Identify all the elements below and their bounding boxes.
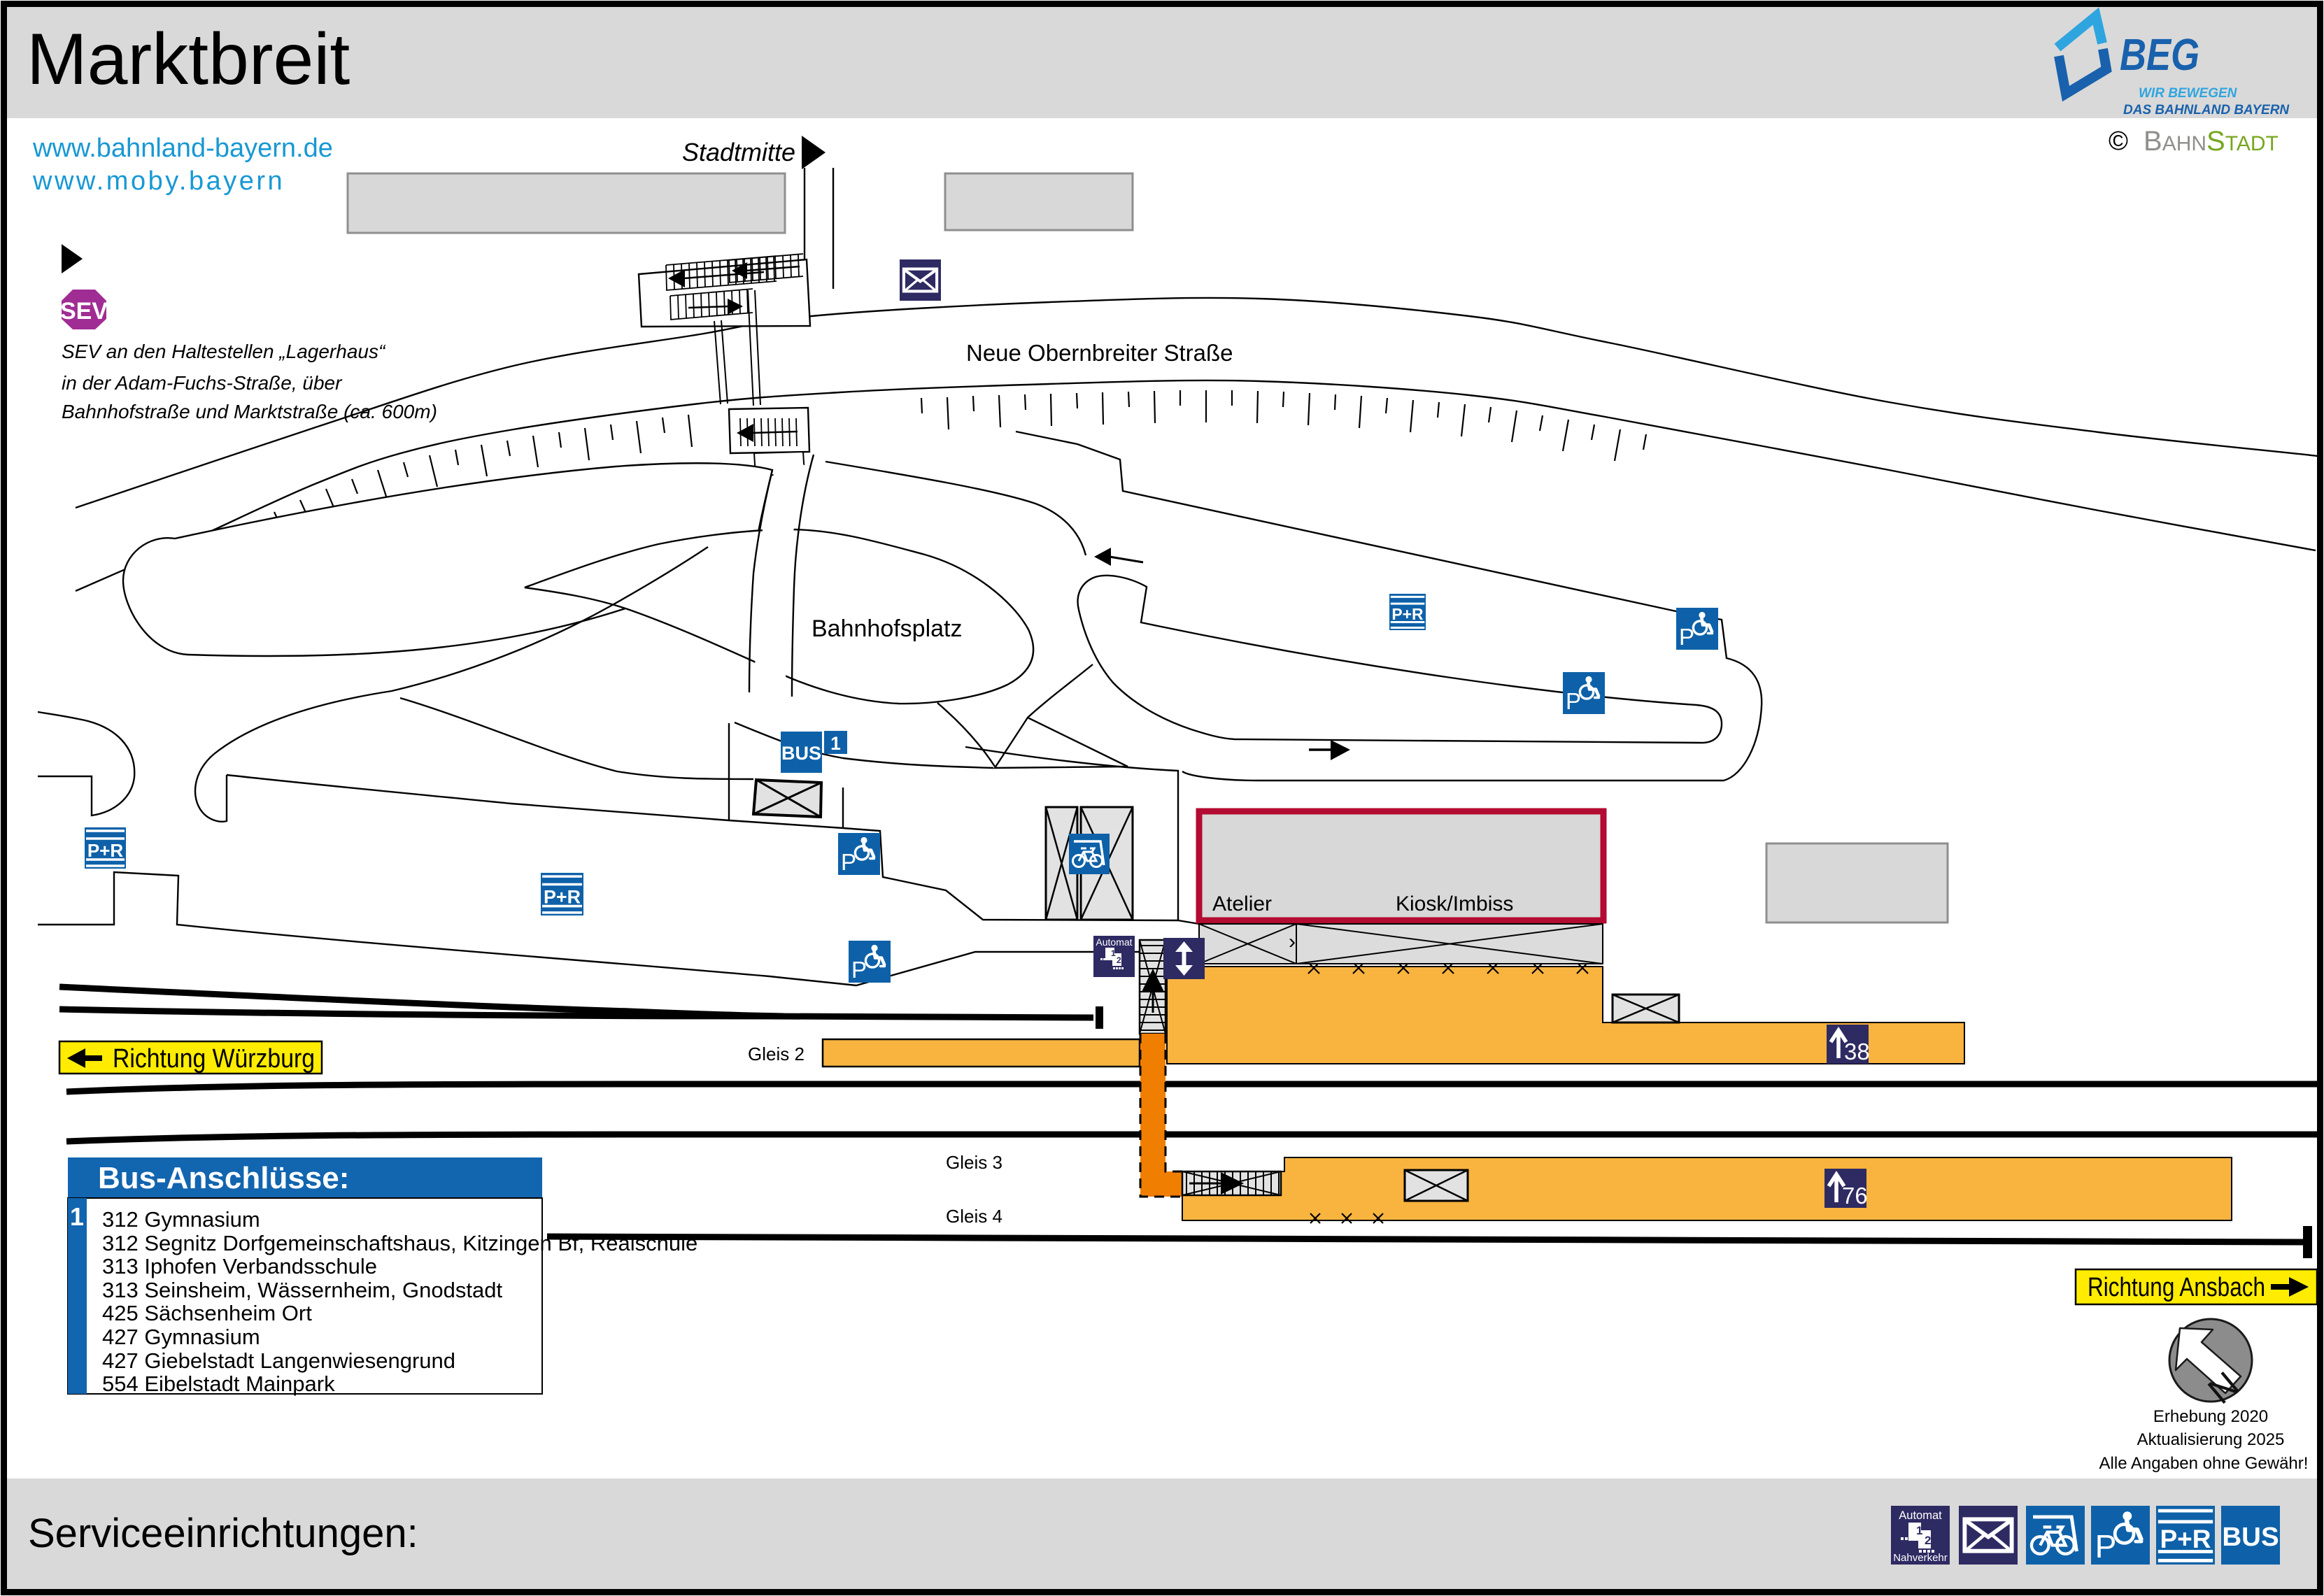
svg-text:Gleis 3: Gleis 3 [946,1152,1002,1173]
svg-text:Aktualisierung 2025: Aktualisierung 2025 [2137,1430,2285,1449]
svg-text:BUS: BUS [2222,1522,2279,1552]
svg-text:www.bahnland-bayern.de: www.bahnland-bayern.de [32,134,333,163]
svg-text:427 Giebelstadt Langenwiesengr: 427 Giebelstadt Langenwiesengrund [102,1348,455,1373]
svg-text:Nahverkehr: Nahverkehr [1893,1552,1948,1564]
svg-text:312 Segnitz Dorfgemeinschaftsh: 312 Segnitz Dorfgemeinschaftshaus, Kitzi… [102,1231,697,1255]
svg-text:BUS: BUS [781,743,821,764]
svg-text:Gleis 2: Gleis 2 [748,1043,805,1064]
svg-text:BEG: BEG [2120,29,2199,80]
svg-text:1: 1 [70,1202,84,1231]
svg-text:1: 1 [1916,1524,1922,1537]
svg-text:SEV an den Haltestellen „Lager: SEV an den Haltestellen „Lagerhaus“ [62,341,386,362]
svg-text:Neue Obernbreiter Straße: Neue Obernbreiter Straße [966,340,1233,366]
svg-text:313 Iphofen Verbandsschule: 313 Iphofen Verbandsschule [102,1254,377,1278]
svg-text:38: 38 [1844,1039,1870,1064]
svg-text:›: › [1289,930,1296,953]
svg-text:in der Adam-Fuchs-Straße, über: in der Adam-Fuchs-Straße, über [62,372,343,394]
svg-text:76: 76 [1842,1183,1868,1209]
svg-text:313 Seinsheim, Wässernheim, Gn: 313 Seinsheim, Wässernheim, Gnodstadt [102,1278,502,1302]
svg-text:P+R: P+R [1391,605,1424,623]
svg-text:Stadtmitte: Stadtmitte [682,138,795,166]
svg-text:P+R: P+R [544,886,581,907]
svg-text:1: 1 [1111,948,1116,958]
svg-text:Bahnhofsplatz: Bahnhofsplatz [812,615,963,642]
svg-text:Kiosk/Imbiss: Kiosk/Imbiss [1396,892,1513,915]
svg-text:WIR BEWEGEN: WIR BEWEGEN [2139,86,2238,101]
svg-text:Marktbreit: Marktbreit [27,19,350,100]
svg-text:427 Gymnasium: 427 Gymnasium [102,1325,260,1349]
svg-text:554 Eibelstadt Mainpark: 554 Eibelstadt Mainpark [102,1371,335,1396]
svg-text:Erhebung 2020: Erhebung 2020 [2153,1407,2268,1426]
svg-text:www.moby.bayern: www.moby.bayern [32,166,285,196]
svg-text:SEV: SEV [60,298,108,325]
svg-text:Gleis 4: Gleis 4 [946,1206,1002,1227]
svg-text:312 Gymnasium: 312 Gymnasium [102,1207,260,1232]
svg-text:Bus-Anschlüsse:: Bus-Anschlüsse: [98,1161,349,1195]
svg-text:Richtung Würzburg: Richtung Würzburg [113,1044,315,1074]
svg-text:Serviceeinrichtungen:: Serviceeinrichtungen: [28,1511,418,1556]
svg-text:Bahnhofstraße und Marktstraße: Bahnhofstraße und Marktstraße (ca. 600m) [62,401,437,422]
svg-text:Richtung Ansbach: Richtung Ansbach [2088,1273,2265,1302]
svg-text:1: 1 [830,733,841,754]
svg-text:Alle Angaben ohne Gewähr!: Alle Angaben ohne Gewähr! [2099,1454,2309,1473]
svg-text:Automat: Automat [1899,1509,1942,1522]
svg-text:425 Sächsenheim Ort: 425 Sächsenheim Ort [102,1301,312,1325]
svg-text:2: 2 [1117,955,1121,965]
svg-text:©: © [2109,127,2128,156]
svg-text:P+R: P+R [87,840,124,861]
svg-text:2: 2 [1925,1534,1931,1547]
svg-text:DAS BAHNLAND BAYERN: DAS BAHNLAND BAYERN [2123,103,2290,117]
svg-text:Automat: Automat [1096,936,1132,948]
svg-text:P+R: P+R [2160,1524,2211,1553]
svg-text:Atelier: Atelier [1212,892,1272,915]
